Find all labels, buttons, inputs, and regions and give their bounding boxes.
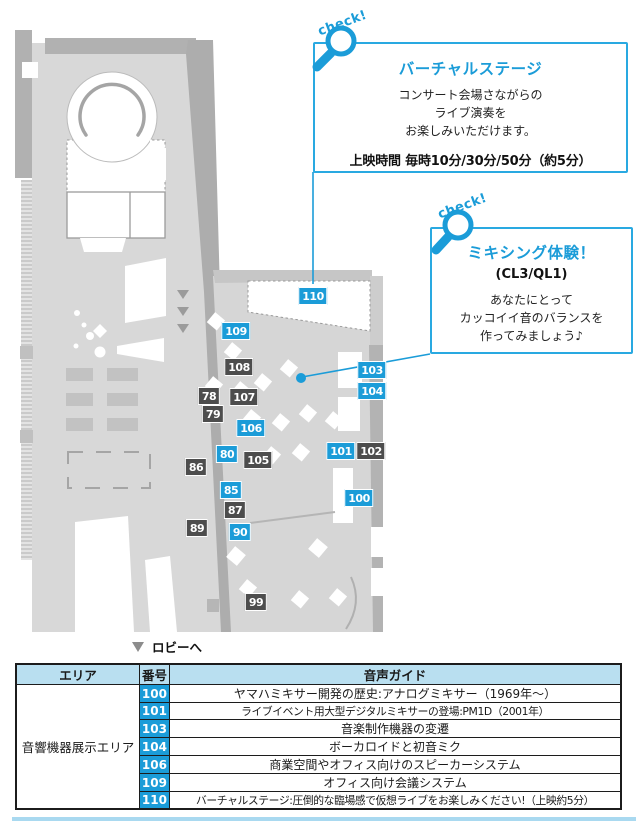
callout-showtimes: 上映時間 毎時10分/30分/50分（約5分） bbox=[315, 150, 626, 169]
guide-number-cell: 103 bbox=[139, 720, 169, 738]
map-marker-99: 99 bbox=[245, 593, 267, 611]
map-marker-86: 86 bbox=[185, 458, 207, 476]
map-marker-80: 80 bbox=[216, 445, 238, 463]
audio-guide-table: エリア 番号 音声ガイド 音響機器展示エリア100ヤマハミキサー開発の歴史:アナ… bbox=[15, 663, 622, 810]
map-marker-90: 90 bbox=[229, 523, 251, 541]
callout-body: コンサート会場さながらのライブ演奏をお楽しみいただけます。 bbox=[315, 86, 626, 141]
guide-number-cell: 104 bbox=[139, 738, 169, 756]
header-audio-guide: 音声ガイド bbox=[170, 664, 622, 685]
area-label-cell: 音響機器展示エリア bbox=[16, 685, 139, 810]
map-marker-105: 105 bbox=[243, 451, 272, 469]
guide-text-cell: バーチャルステージ:圧倒的な臨場感で仮想ライブをお楽しみください!（上映約5分） bbox=[170, 792, 622, 810]
callout-title: バーチャルステージ bbox=[315, 57, 626, 79]
guide-text-cell: 商業空間やオフィス向けのスピーカーシステム bbox=[170, 756, 622, 774]
callout-body: あなたにとってカッコイイ音のバランスを作ってみましょう♪ bbox=[432, 291, 631, 346]
guide-text-cell: 音楽制作機器の変遷 bbox=[170, 720, 622, 738]
callout-virtual-stage: バーチャルステージ コンサート会場さながらのライブ演奏をお楽しみいただけます。 … bbox=[313, 42, 628, 173]
lobby-note: ロビーへ bbox=[132, 637, 202, 656]
map-marker-102: 102 bbox=[356, 442, 385, 460]
map-marker-85: 85 bbox=[220, 481, 242, 499]
header-number: 番号 bbox=[139, 664, 169, 685]
map-marker-110: 110 bbox=[298, 287, 327, 305]
map-marker-87: 87 bbox=[224, 501, 246, 519]
header-area: エリア bbox=[16, 664, 139, 685]
callout-subtitle: (CL3/QL1) bbox=[432, 267, 631, 282]
map-marker-89: 89 bbox=[186, 519, 208, 537]
map-marker-103: 103 bbox=[357, 361, 386, 379]
map-marker-104: 104 bbox=[357, 382, 386, 400]
map-marker-100: 100 bbox=[344, 489, 373, 507]
callout-body-line: カッコイイ音のバランスを bbox=[432, 309, 631, 327]
map-marker-79: 79 bbox=[202, 405, 224, 423]
lobby-note-text: ロビーへ bbox=[152, 637, 202, 656]
guide-number-cell: 101 bbox=[139, 703, 169, 720]
callout-body-line: お楽しみいただけます。 bbox=[315, 122, 626, 140]
map-marker-101: 101 bbox=[326, 442, 355, 460]
callout-body-line: コンサート会場さながらの bbox=[315, 86, 626, 104]
guide-number-cell: 110 bbox=[139, 792, 169, 810]
guide-text-cell: オフィス向け会議システム bbox=[170, 774, 622, 792]
guide-text-cell: ライブイベント用大型デジタルミキサーの登場:PM1D（2001年） bbox=[170, 703, 622, 720]
magnifier-icon bbox=[308, 22, 358, 74]
callout-body-line: 作ってみましょう♪ bbox=[432, 327, 631, 345]
guide-text-cell: ボーカロイドと初音ミク bbox=[170, 738, 622, 756]
table-header-row: エリア 番号 音声ガイド bbox=[16, 664, 621, 685]
map-marker-78: 78 bbox=[198, 387, 220, 405]
callout-body-line: あなたにとって bbox=[432, 291, 631, 309]
guide-number-cell: 109 bbox=[139, 774, 169, 792]
guide-text-cell: ヤマハミキサー開発の歴史:アナログミキサー（1969年〜） bbox=[170, 685, 622, 703]
bottom-divider bbox=[12, 817, 636, 821]
page: 1101091087879107106801058685878990991031… bbox=[0, 0, 636, 830]
map-marker-107: 107 bbox=[229, 388, 258, 406]
map-marker-109: 109 bbox=[221, 322, 250, 340]
guide-number-cell: 106 bbox=[139, 756, 169, 774]
guide-number-cell: 100 bbox=[139, 685, 169, 703]
callout-body-line: ライブ演奏を bbox=[315, 104, 626, 122]
map-marker-106: 106 bbox=[236, 419, 265, 437]
table-row: 音響機器展示エリア100ヤマハミキサー開発の歴史:アナログミキサー（1969年〜… bbox=[16, 685, 621, 703]
map-marker-108: 108 bbox=[224, 358, 253, 376]
magnifier-icon bbox=[425, 206, 475, 258]
down-triangle-icon bbox=[132, 642, 144, 652]
